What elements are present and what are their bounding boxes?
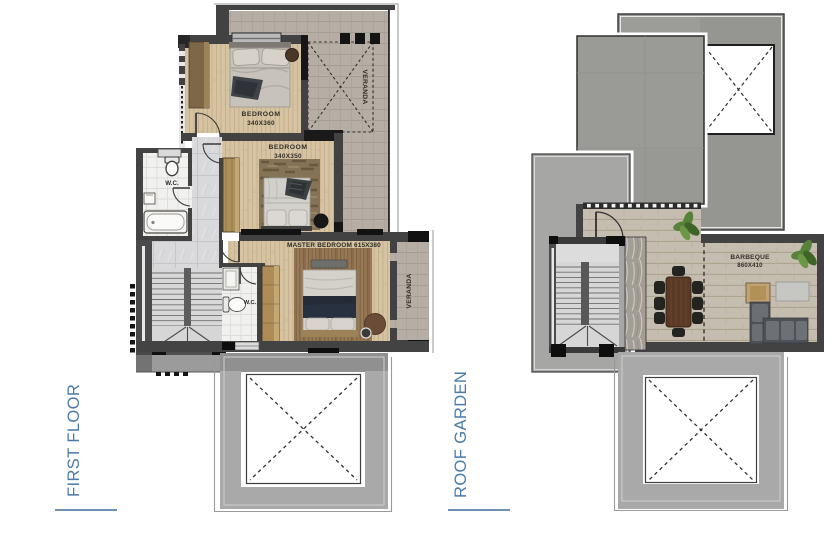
svg-text:BEDROOM: BEDROOM: [242, 111, 281, 118]
svg-text:VERANDA: VERANDA: [361, 69, 368, 104]
svg-text:860X410: 860X410: [737, 263, 763, 269]
svg-text:ROOF GARDEN: ROOF GARDEN: [452, 371, 470, 498]
svg-text:340X350: 340X350: [274, 153, 302, 160]
svg-text:VERANDA: VERANDA: [406, 273, 413, 308]
svg-text:BEDROOM: BEDROOM: [269, 144, 308, 151]
svg-text:W.C.: W.C.: [244, 300, 257, 306]
svg-text:340X360: 340X360: [247, 120, 275, 127]
svg-text:BARBEQUE: BARBEQUE: [730, 254, 770, 261]
svg-text:FIRST FLOOR: FIRST FLOOR: [65, 384, 83, 497]
svg-text:W.C.: W.C.: [165, 180, 179, 187]
svg-text:MASTER BEDROOM 615X380: MASTER BEDROOM 615X380: [287, 242, 381, 249]
